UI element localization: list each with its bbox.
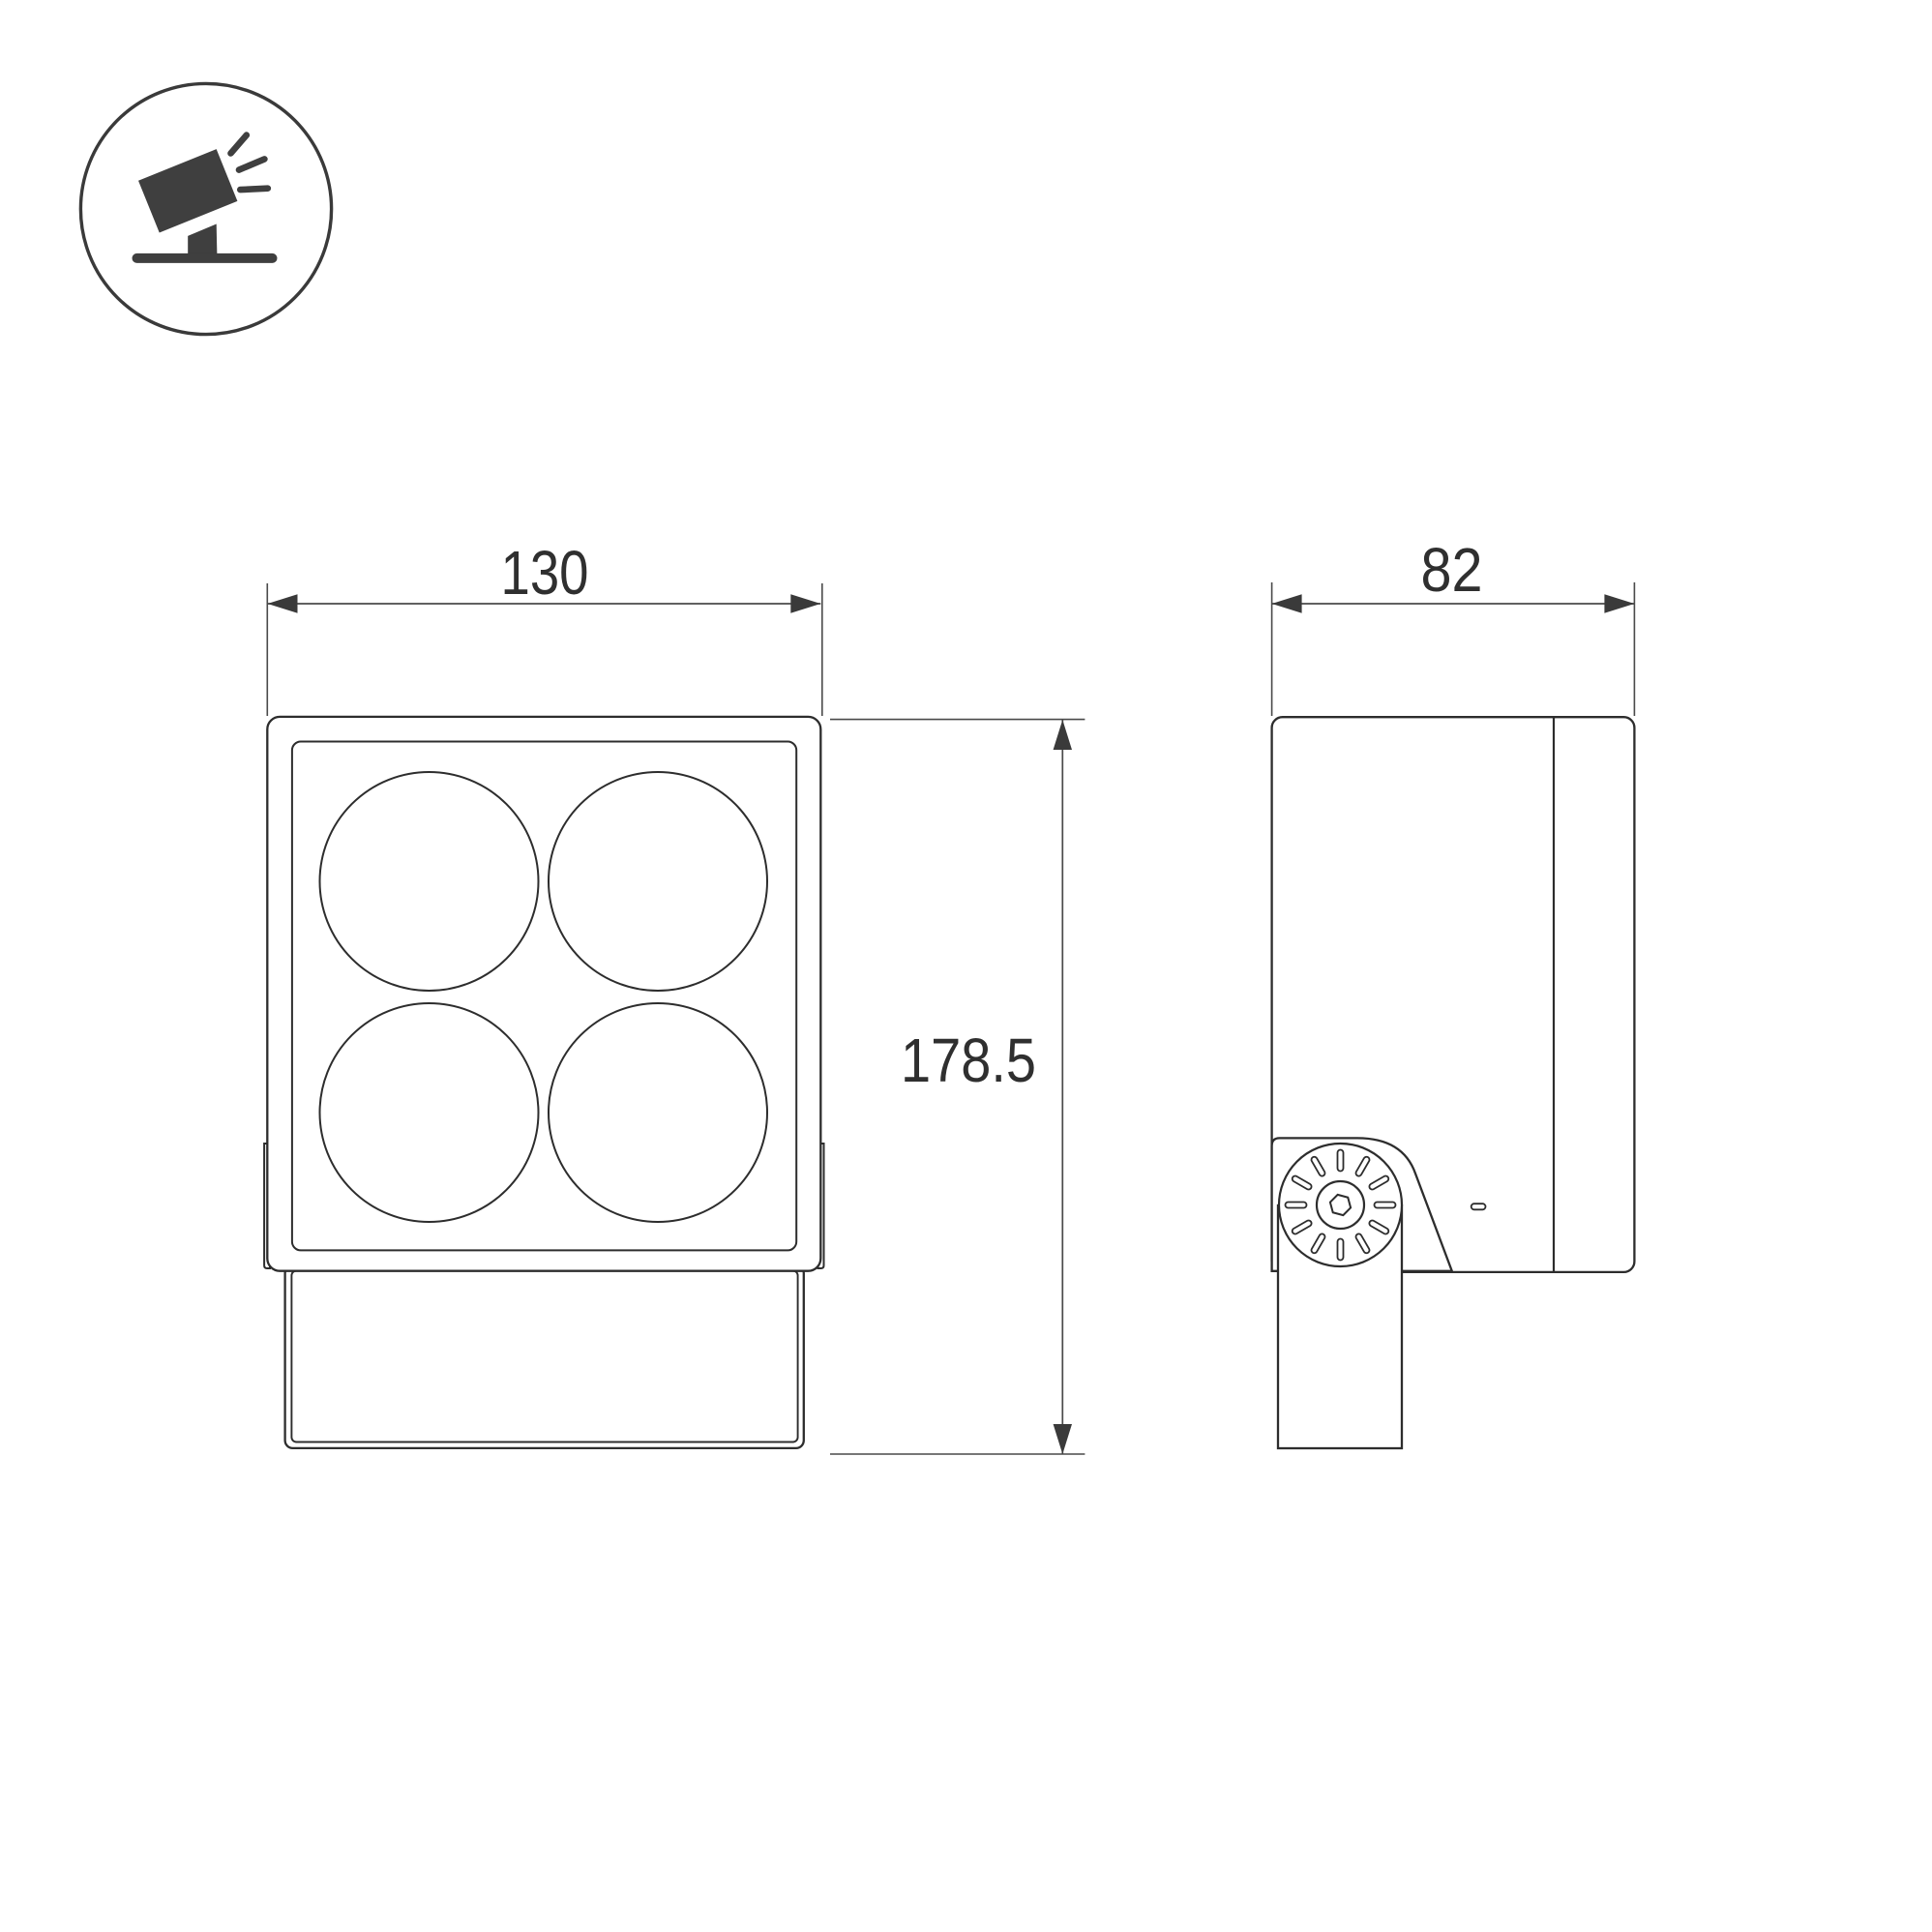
svg-text:178.5: 178.5 bbox=[901, 1025, 1036, 1095]
svg-text:130: 130 bbox=[501, 538, 589, 608]
svg-text:82: 82 bbox=[1421, 535, 1483, 605]
